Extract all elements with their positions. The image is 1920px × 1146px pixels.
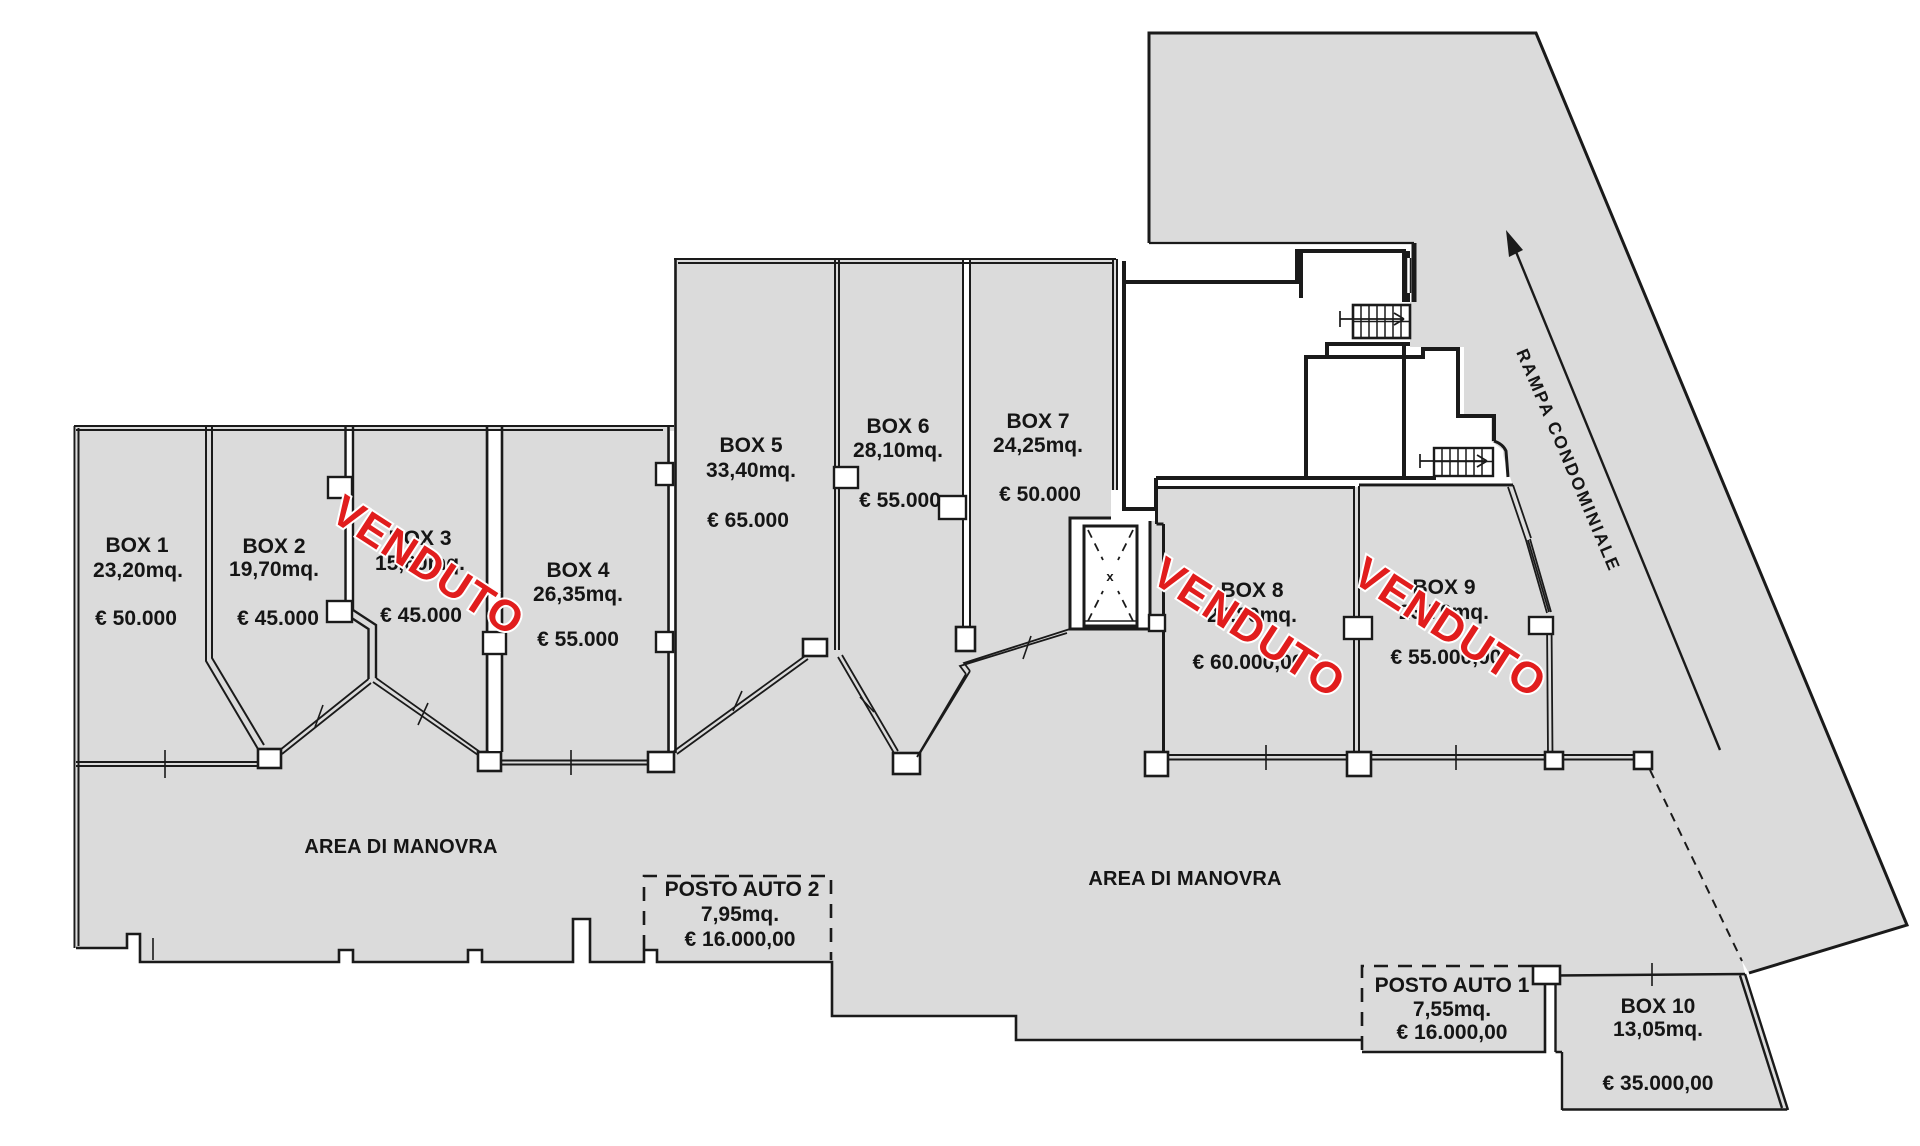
svg-text:AREA DI MANOVRA: AREA DI MANOVRA	[304, 836, 497, 858]
svg-text:28,10mq.: 28,10mq.	[853, 439, 943, 462]
svg-text:€ 50.000: € 50.000	[999, 483, 1081, 506]
svg-text:24,25mq.: 24,25mq.	[993, 434, 1083, 457]
svg-text:x: x	[1106, 569, 1114, 584]
svg-text:BOX 5: BOX 5	[719, 434, 782, 457]
svg-text:€ 16.000,00: € 16.000,00	[1397, 1021, 1508, 1044]
svg-text:BOX 4: BOX 4	[546, 559, 609, 582]
svg-text:€ 55.000: € 55.000	[859, 489, 941, 512]
svg-text:BOX 6: BOX 6	[866, 415, 929, 438]
svg-text:€ 35.000,00: € 35.000,00	[1603, 1072, 1714, 1095]
svg-text:7,95mq.: 7,95mq.	[701, 903, 779, 926]
svg-text:23,20mq.: 23,20mq.	[93, 559, 183, 582]
svg-text:33,40mq.: 33,40mq.	[706, 459, 796, 482]
svg-text:13,05mq.: 13,05mq.	[1613, 1018, 1703, 1041]
svg-text:BOX 2: BOX 2	[242, 535, 305, 558]
svg-text:19,70mq.: 19,70mq.	[229, 558, 319, 581]
svg-text:BOX 7: BOX 7	[1006, 410, 1069, 433]
svg-text:POSTO AUTO 2: POSTO AUTO 2	[665, 878, 820, 901]
svg-text:POSTO AUTO 1: POSTO AUTO 1	[1375, 974, 1530, 997]
svg-text:AREA DI MANOVRA: AREA DI MANOVRA	[1088, 868, 1281, 890]
svg-text:€ 55.000: € 55.000	[537, 628, 619, 651]
svg-text:€ 16.000,00: € 16.000,00	[685, 928, 796, 951]
svg-text:€ 45.000: € 45.000	[237, 607, 319, 630]
svg-text:BOX 10: BOX 10	[1621, 995, 1696, 1018]
svg-text:€ 65.000: € 65.000	[707, 509, 789, 532]
svg-text:7,55mq.: 7,55mq.	[1413, 998, 1491, 1021]
svg-text:€ 50.000: € 50.000	[95, 607, 177, 630]
svg-text:BOX 1: BOX 1	[105, 534, 168, 557]
svg-text:26,35mq.: 26,35mq.	[533, 583, 623, 606]
